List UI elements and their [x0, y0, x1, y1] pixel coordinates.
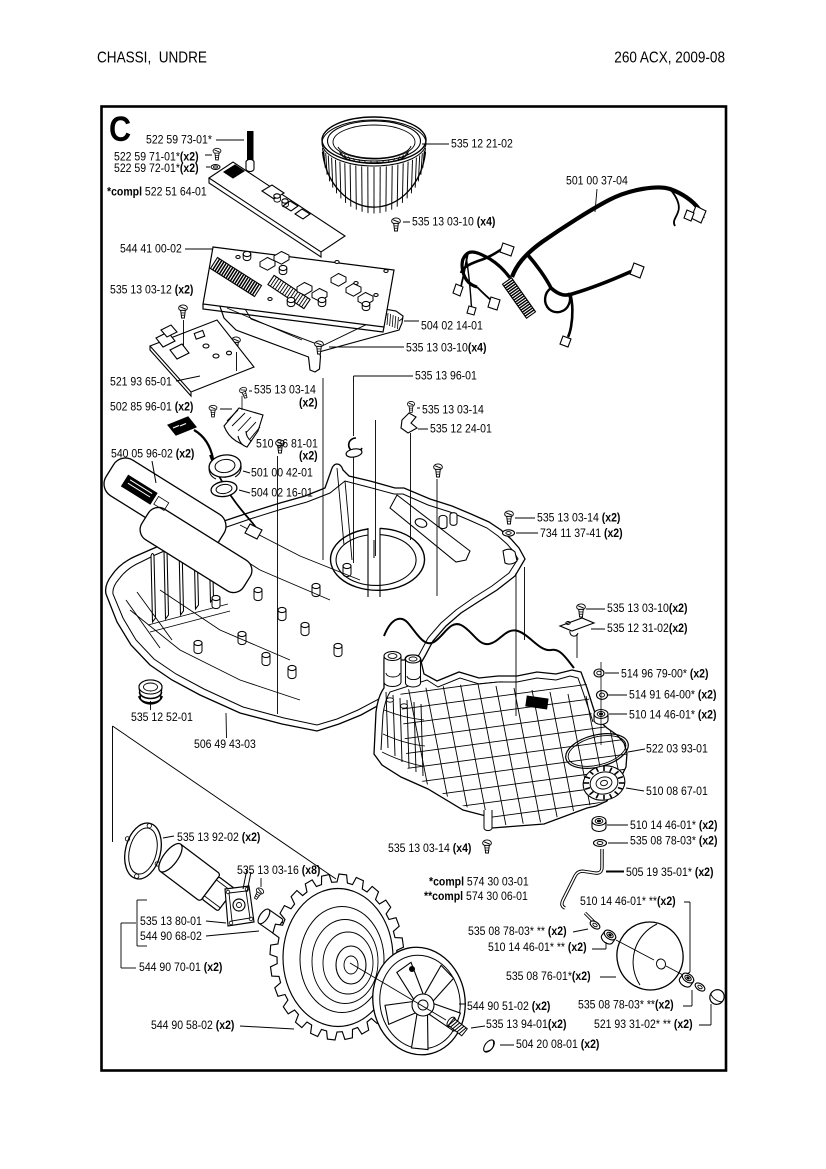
svg-text:535 08 78-03* **(x2): 535 08 78-03* **(x2) — [578, 999, 674, 1012]
svg-text:CHASSI, UNDRE: CHASSI, UNDRE — [97, 50, 207, 67]
svg-text:510 14 46-01* (x2): 510 14 46-01* (x2) — [630, 820, 718, 833]
svg-text:C: C — [109, 109, 131, 148]
svg-text:535 13 03-14: 535 13 03-14 — [254, 384, 316, 397]
svg-text:535 08 78-03* ** (x2): 535 08 78-03* ** (x2) — [468, 926, 567, 939]
svg-text:(x2): (x2) — [299, 450, 318, 463]
svg-text:535 13 03-10(x2): 535 13 03-10(x2) — [607, 603, 688, 616]
svg-text:510 14 46-01* (x2): 510 14 46-01* (x2) — [629, 709, 717, 722]
svg-text:544 90 70-01 (x2): 544 90 70-01 (x2) — [139, 962, 223, 975]
svg-text:(x2): (x2) — [299, 397, 318, 410]
svg-text:535 13 03-12 (x2): 535 13 03-12 (x2) — [110, 284, 194, 297]
svg-text:544 41 00-02: 544 41 00-02 — [120, 243, 182, 256]
svg-text:544 90 51-02 (x2): 544 90 51-02 (x2) — [467, 1001, 551, 1014]
svg-text:535 13 92-02 (x2): 535 13 92-02 (x2) — [177, 832, 261, 845]
svg-text:535 12 52-01: 535 12 52-01 — [131, 712, 193, 725]
svg-text:*compl 522 51 64-01: *compl 522 51 64-01 — [107, 186, 207, 199]
svg-text:535 13 03-14 (x4): 535 13 03-14 (x4) — [388, 843, 472, 856]
svg-text:510 36 81-01: 510 36 81-01 — [256, 438, 318, 451]
svg-text:734 11 37-41 (x2): 734 11 37-41 (x2) — [540, 528, 623, 541]
svg-text:504 02 14-01: 504 02 14-01 — [421, 320, 483, 333]
svg-text:510 08 67-01: 510 08 67-01 — [646, 786, 708, 799]
svg-text:522 59 72-01*(x2): 522 59 72-01*(x2) — [114, 163, 199, 176]
svg-text:504 20 08-01 (x2): 504 20 08-01 (x2) — [516, 1039, 600, 1052]
svg-text:521 93 31-02* ** (x2): 521 93 31-02* ** (x2) — [594, 1019, 693, 1032]
svg-text:535 13 94-01(x2): 535 13 94-01(x2) — [486, 1019, 567, 1032]
svg-text:535 13 03-16 (x8): 535 13 03-16 (x8) — [237, 865, 321, 878]
svg-text:506 49 43-03: 506 49 43-03 — [194, 739, 256, 752]
svg-text:535 08 76-01*(x2): 535 08 76-01*(x2) — [506, 971, 591, 984]
svg-text:510 14 46-01* **(x2): 510 14 46-01* **(x2) — [580, 896, 676, 909]
svg-text:535 13 03-10(x4): 535 13 03-10(x4) — [406, 342, 487, 355]
svg-text:540 05 96-02 (x2): 540 05 96-02 (x2) — [111, 448, 195, 461]
svg-text:**compl 574 30 06-01: **compl 574 30 06-01 — [424, 891, 528, 904]
svg-text:535 13 96-01: 535 13 96-01 — [415, 370, 477, 383]
svg-text:535 13 03-14 (x2): 535 13 03-14 (x2) — [537, 512, 621, 525]
svg-text:514 96 79-00* (x2): 514 96 79-00* (x2) — [621, 668, 709, 681]
svg-text:*compl 574 30 03-01: *compl 574 30 03-01 — [429, 876, 529, 889]
svg-text:505 19 35-01* (x2): 505 19 35-01* (x2) — [626, 867, 714, 880]
svg-text:522 59 73-01*: 522 59 73-01* — [146, 134, 212, 147]
svg-text:502 85 96-01 (x2): 502 85 96-01 (x2) — [110, 401, 194, 414]
svg-text:535 12 31-02(x2): 535 12 31-02(x2) — [607, 623, 688, 636]
svg-text:535 12 24-01: 535 12 24-01 — [430, 423, 492, 436]
svg-text:501 00 42-01: 501 00 42-01 — [251, 467, 313, 480]
svg-text:521 93 65-01: 521 93 65-01 — [110, 376, 172, 389]
svg-text:522 03 93-01: 522 03 93-01 — [646, 743, 708, 756]
svg-text:501 00 37-04: 501 00 37-04 — [566, 175, 628, 188]
svg-text:535 08 78-03* (x2): 535 08 78-03* (x2) — [630, 835, 718, 848]
svg-text:535 12 21-02: 535 12 21-02 — [451, 138, 513, 151]
svg-text:510 14 46-01* ** (x2): 510 14 46-01* ** (x2) — [488, 942, 587, 955]
svg-text:535 13 03-14: 535 13 03-14 — [422, 404, 484, 417]
svg-text:535 13 03-10 (x4): 535 13 03-10 (x4) — [412, 216, 496, 229]
svg-text:544 90 58-02 (x2): 544 90 58-02 (x2) — [151, 1020, 235, 1033]
svg-text:260 ACX, 2009-08: 260 ACX, 2009-08 — [614, 50, 725, 67]
svg-text:514 91 64-00* (x2): 514 91 64-00* (x2) — [629, 689, 717, 702]
svg-text:504 02 16-01: 504 02 16-01 — [251, 487, 313, 500]
svg-text:544 90 68-02: 544 90 68-02 — [140, 931, 202, 944]
svg-text:535 13 80-01: 535 13 80-01 — [140, 916, 202, 929]
